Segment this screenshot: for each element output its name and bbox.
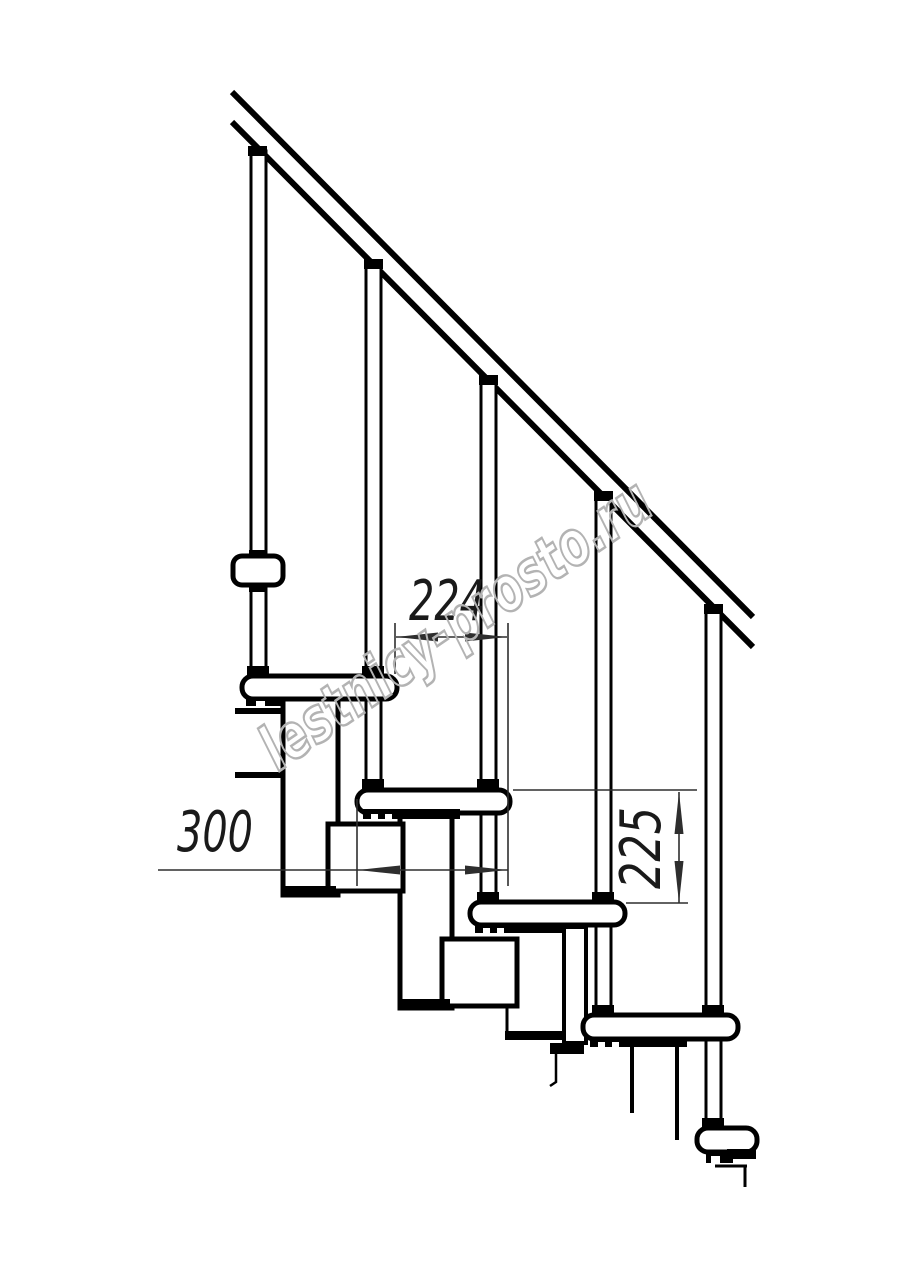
module-box-2 xyxy=(442,939,517,1006)
staircase-drawing: 224 300 225 lestnicy-prosto.ru xyxy=(0,0,914,1280)
tread-2-bracket-notch-a xyxy=(371,814,378,819)
tread-3 xyxy=(470,902,625,925)
dimension-rise-label: 225 xyxy=(609,807,674,889)
connector-b5-t4 xyxy=(702,1005,724,1016)
connector-b4-t4 xyxy=(592,1005,614,1016)
module-shelf-band xyxy=(505,1031,567,1040)
tread-4-bracket-notch-b xyxy=(612,1042,619,1047)
dimension-rise-arrow-up xyxy=(675,792,684,834)
tread-2-bracket-notch-b xyxy=(385,814,392,819)
tread-4-bracket-notch-a xyxy=(598,1042,605,1047)
clamp-body xyxy=(233,556,283,585)
module-column-2-foot xyxy=(402,999,450,1009)
tread-3-bracket-notch-b xyxy=(497,928,504,933)
dimension-depth-label: 300 xyxy=(177,800,253,865)
module-column-1-foot xyxy=(285,886,336,896)
tread-3-bracket-notch-a xyxy=(483,928,490,933)
connector-b2-t2 xyxy=(362,779,384,790)
baluster-1-clamp xyxy=(233,550,283,592)
baluster-5-rail-connector xyxy=(704,604,723,614)
module-column-3-tail xyxy=(550,1054,556,1086)
connector-b3-t3 xyxy=(477,892,499,903)
connector-b5-t5 xyxy=(702,1118,724,1129)
baluster-1 xyxy=(251,151,266,676)
baluster-3-rail-connector xyxy=(479,375,498,385)
module-column-3-foot xyxy=(550,1043,584,1054)
baluster-1-rail-connector xyxy=(248,146,267,156)
connector-b4-t3 xyxy=(592,892,614,903)
tread-5-step-bracket-notch xyxy=(711,1156,720,1163)
module-box-1 xyxy=(328,824,403,891)
tread-1-bracket-notch xyxy=(256,701,265,706)
connector-b3-t2 xyxy=(477,779,499,790)
connector-b1-t1 xyxy=(247,666,269,677)
dimension-rise-arrow-down xyxy=(675,861,684,903)
baluster-4 xyxy=(596,497,611,1015)
baluster-2-rail-connector xyxy=(364,259,383,269)
staircase-drawing-page: 224 300 225 lestnicy-prosto.ru xyxy=(0,0,914,1280)
baluster-5 xyxy=(706,610,721,1128)
tread-4 xyxy=(583,1015,738,1039)
tread-5 xyxy=(697,1128,757,1152)
